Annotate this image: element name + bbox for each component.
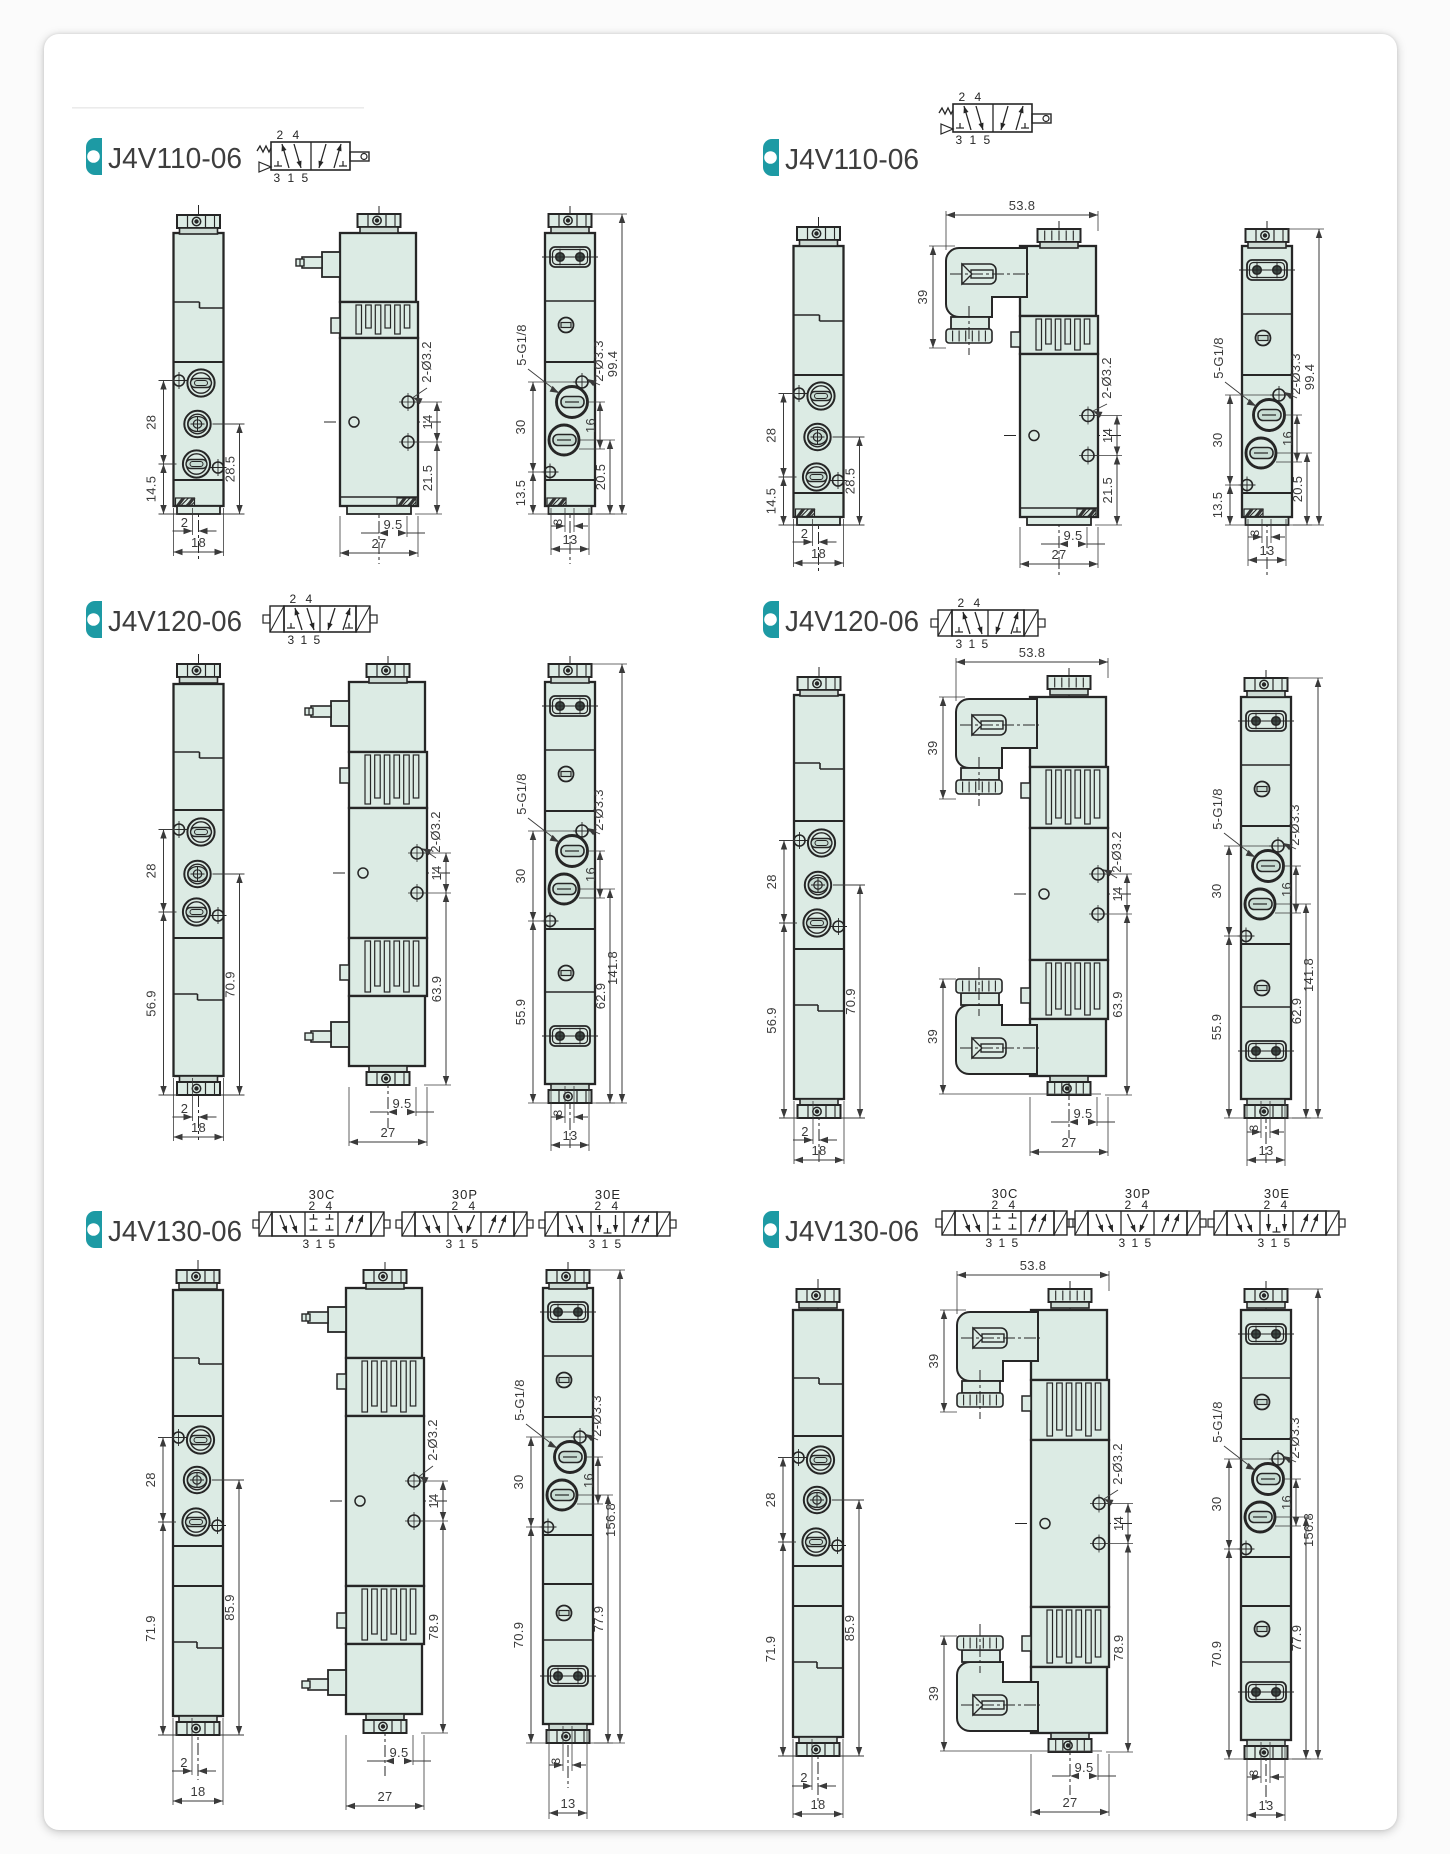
svg-text:5-G1/8: 5-G1/8 [1210,788,1225,830]
svg-text:14: 14 [429,865,444,880]
svg-text:4: 4 [1142,1198,1149,1212]
svg-text:27: 27 [1061,1135,1076,1150]
svg-text:2: 2 [309,1199,316,1213]
svg-text:4: 4 [975,90,982,104]
svg-text:30: 30 [1209,1496,1224,1511]
svg-text:20.5: 20.5 [593,464,608,491]
svg-text:63.9: 63.9 [1110,991,1125,1018]
svg-text:5-G1/8: 5-G1/8 [512,1379,527,1421]
svg-text:1: 1 [316,1237,323,1251]
svg-text:9.5: 9.5 [1075,1760,1094,1775]
svg-text:3: 3 [1247,1124,1261,1131]
svg-text:27: 27 [380,1125,395,1140]
svg-text:4: 4 [293,128,300,142]
svg-text:28: 28 [144,415,159,430]
svg-text:5: 5 [1012,1236,1019,1250]
svg-text:14.5: 14.5 [144,476,159,503]
svg-text:2-Ø3.2: 2-Ø3.2 [428,811,443,853]
svg-text:39: 39 [925,1029,940,1044]
svg-text:21.5: 21.5 [1100,477,1115,504]
svg-text:2: 2 [801,1124,809,1139]
svg-text:2: 2 [1264,1198,1271,1212]
svg-text:14: 14 [1110,886,1125,901]
svg-text:2: 2 [801,526,809,541]
svg-text:1: 1 [459,1237,466,1251]
svg-text:3: 3 [956,133,963,147]
svg-text:2: 2 [181,1101,189,1116]
svg-text:4: 4 [469,1199,476,1213]
svg-text:2-Ø3.2: 2-Ø3.2 [1110,1443,1125,1485]
svg-text:30: 30 [513,868,528,883]
svg-text:3: 3 [986,1236,993,1250]
svg-text:1: 1 [1271,1236,1278,1250]
svg-text:63.9: 63.9 [429,976,444,1003]
svg-text:30: 30 [1209,883,1224,898]
svg-text:5-G1/8: 5-G1/8 [514,773,529,815]
svg-text:27: 27 [371,536,386,551]
svg-text:20.5: 20.5 [1290,476,1305,503]
svg-text:39: 39 [926,1353,941,1368]
svg-text:85.9: 85.9 [842,1615,857,1642]
svg-text:3: 3 [551,1109,565,1116]
svg-text:39: 39 [926,1686,941,1701]
svg-text:3: 3 [549,1757,563,1764]
svg-text:J4V110-06: J4V110-06 [785,144,919,176]
svg-text:14: 14 [420,414,435,429]
svg-text:2: 2 [958,596,965,610]
svg-text:2-Ø3.3: 2-Ø3.3 [1288,353,1303,395]
svg-text:53.8: 53.8 [1019,645,1046,660]
svg-text:39: 39 [915,289,930,304]
svg-text:13: 13 [560,1796,575,1811]
svg-text:2: 2 [181,515,189,530]
svg-text:3: 3 [1248,529,1262,536]
svg-text:156.8: 156.8 [1301,1513,1316,1547]
svg-text:71.9: 71.9 [143,1615,158,1642]
svg-text:30: 30 [511,1474,526,1489]
svg-text:18: 18 [811,546,826,561]
svg-text:18: 18 [191,1120,206,1135]
svg-text:28: 28 [764,428,779,443]
svg-text:16: 16 [1280,431,1295,446]
svg-text:18: 18 [811,1143,826,1158]
svg-text:9.5: 9.5 [393,1096,412,1111]
svg-text:1: 1 [602,1237,609,1251]
svg-text:5: 5 [984,133,991,147]
svg-text:28: 28 [764,874,779,889]
svg-text:3: 3 [1247,1769,1261,1776]
svg-text:27: 27 [377,1789,392,1804]
svg-text:56.9: 56.9 [144,990,159,1017]
svg-text:71.9: 71.9 [763,1636,778,1663]
svg-text:13.5: 13.5 [1210,492,1225,519]
svg-text:5-G1/8: 5-G1/8 [1210,1401,1225,1443]
svg-text:18: 18 [190,1784,205,1799]
svg-text:2-Ø3.3: 2-Ø3.3 [591,340,606,382]
svg-text:5: 5 [1284,1236,1291,1250]
svg-text:4: 4 [326,1199,333,1213]
svg-text:J4V120-06: J4V120-06 [108,606,242,638]
svg-text:16: 16 [583,867,598,882]
svg-text:28.5: 28.5 [843,468,858,495]
svg-text:2: 2 [595,1199,602,1213]
svg-text:2-Ø3.2: 2-Ø3.2 [419,341,434,383]
svg-text:55.9: 55.9 [1209,1014,1224,1041]
svg-text:14: 14 [1111,1516,1126,1531]
svg-text:2: 2 [290,592,297,606]
svg-text:J4V130-06: J4V130-06 [108,1216,242,1248]
svg-text:16: 16 [1279,1495,1294,1510]
svg-text:16: 16 [581,1473,596,1488]
svg-text:9.5: 9.5 [1064,528,1083,543]
svg-text:2: 2 [1125,1198,1132,1212]
svg-text:13.5: 13.5 [513,480,528,507]
svg-text:27: 27 [1051,547,1066,562]
svg-text:70.9: 70.9 [843,988,858,1015]
svg-text:62.9: 62.9 [1289,998,1304,1025]
svg-text:28: 28 [144,863,159,878]
svg-text:18: 18 [810,1797,825,1812]
svg-text:9.5: 9.5 [390,1745,409,1760]
svg-text:1: 1 [970,133,977,147]
svg-text:18: 18 [191,535,206,550]
svg-text:J4V110-06: J4V110-06 [108,143,242,175]
svg-text:62.9: 62.9 [593,983,608,1010]
svg-text:28.5: 28.5 [223,456,238,483]
svg-text:5: 5 [982,637,989,651]
svg-text:2: 2 [180,1755,188,1770]
svg-text:77.9: 77.9 [591,1606,606,1633]
svg-text:5: 5 [472,1237,479,1251]
svg-text:14.5: 14.5 [764,488,779,515]
svg-text:1: 1 [1132,1236,1139,1250]
svg-text:56.9: 56.9 [764,1007,779,1034]
svg-text:30: 30 [513,419,528,434]
svg-text:5: 5 [302,171,309,185]
svg-text:99.4: 99.4 [605,351,620,378]
svg-text:3: 3 [551,518,565,525]
svg-text:3: 3 [274,171,281,185]
svg-text:5: 5 [329,1237,336,1251]
svg-text:28: 28 [763,1492,778,1507]
svg-text:3: 3 [956,637,963,651]
svg-text:14: 14 [426,1493,441,1508]
svg-text:1: 1 [969,637,976,651]
svg-text:14: 14 [1100,428,1115,443]
svg-text:5-G1/8: 5-G1/8 [1211,337,1226,379]
svg-text:3: 3 [288,633,295,647]
svg-text:39: 39 [925,740,940,755]
svg-text:27: 27 [1062,1795,1077,1810]
svg-text:28: 28 [143,1472,158,1487]
svg-text:4: 4 [1281,1198,1288,1212]
svg-text:13: 13 [1258,1798,1273,1813]
svg-text:1: 1 [301,633,308,647]
svg-text:2-Ø3.3: 2-Ø3.3 [1287,1417,1302,1459]
svg-text:2-Ø3.2: 2-Ø3.2 [425,1419,440,1461]
svg-text:16: 16 [1279,882,1294,897]
svg-text:53.8: 53.8 [1020,1258,1047,1273]
svg-text:2: 2 [959,90,966,104]
svg-text:78.9: 78.9 [426,1614,441,1641]
svg-text:3: 3 [303,1237,310,1251]
svg-text:55.9: 55.9 [513,999,528,1026]
svg-text:2: 2 [452,1199,459,1213]
svg-text:16: 16 [583,418,598,433]
svg-text:2: 2 [277,128,284,142]
svg-text:1: 1 [999,1236,1006,1250]
svg-text:70.9: 70.9 [223,971,238,998]
svg-text:2-Ø3.3: 2-Ø3.3 [589,1395,604,1437]
svg-text:77.9: 77.9 [1289,1625,1304,1652]
svg-text:141.8: 141.8 [605,951,620,985]
svg-text:2: 2 [992,1198,999,1212]
svg-text:13: 13 [562,1128,577,1143]
svg-text:21.5: 21.5 [420,465,435,492]
svg-text:3: 3 [589,1237,596,1251]
svg-text:5: 5 [1145,1236,1152,1250]
svg-text:5: 5 [615,1237,622,1251]
svg-text:9.5: 9.5 [384,517,403,532]
svg-text:5: 5 [314,633,321,647]
svg-text:2-Ø3.3: 2-Ø3.3 [591,789,606,831]
svg-text:J4V130-06: J4V130-06 [785,1216,919,1248]
svg-text:4: 4 [612,1199,619,1213]
svg-text:156.8: 156.8 [603,1503,618,1537]
svg-text:2-Ø3.2: 2-Ø3.2 [1099,357,1114,399]
svg-text:J4V120-06: J4V120-06 [785,606,919,638]
svg-text:13: 13 [1258,1143,1273,1158]
svg-text:4: 4 [1009,1198,1016,1212]
svg-text:4: 4 [974,596,981,610]
svg-text:78.9: 78.9 [1111,1635,1126,1662]
svg-text:85.9: 85.9 [222,1594,237,1621]
svg-text:3: 3 [1258,1236,1265,1250]
svg-text:53.8: 53.8 [1009,198,1036,213]
svg-text:99.4: 99.4 [1302,364,1317,391]
svg-text:1: 1 [288,171,295,185]
svg-text:141.8: 141.8 [1301,958,1316,992]
svg-text:2-Ø3.3: 2-Ø3.3 [1287,804,1302,846]
svg-text:2: 2 [800,1770,808,1785]
svg-text:2-Ø3.2: 2-Ø3.2 [1109,831,1124,873]
svg-text:70.9: 70.9 [1209,1641,1224,1668]
svg-text:13: 13 [562,532,577,547]
svg-text:4: 4 [306,592,313,606]
svg-text:3: 3 [1119,1236,1126,1250]
svg-text:3: 3 [446,1237,453,1251]
svg-text:13: 13 [1259,543,1274,558]
svg-text:5-G1/8: 5-G1/8 [514,324,529,366]
svg-text:9.5: 9.5 [1074,1106,1093,1121]
svg-text:70.9: 70.9 [511,1622,526,1649]
svg-text:30: 30 [1210,432,1225,447]
